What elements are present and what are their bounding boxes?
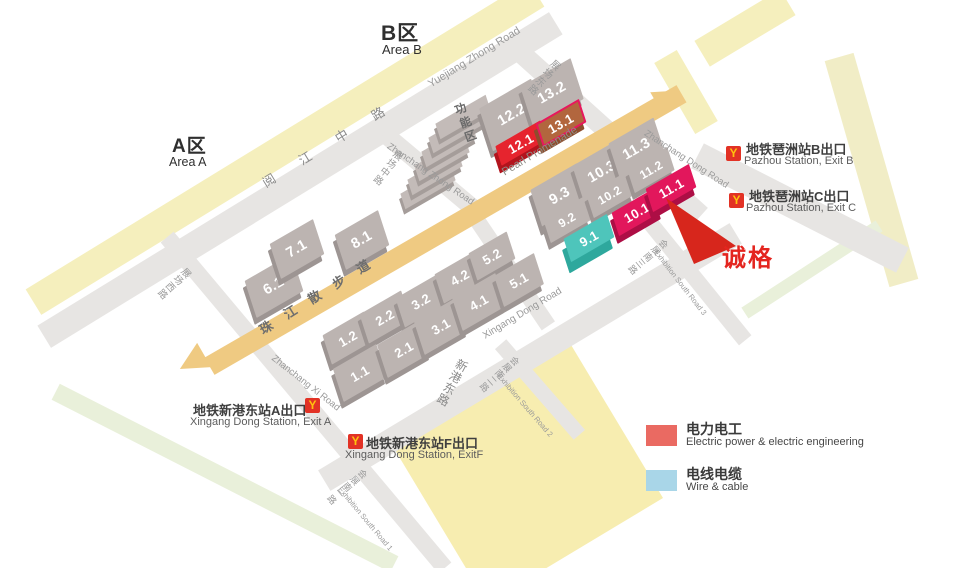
- legend-swatch-cable: [646, 470, 677, 491]
- hall-label: 1.1: [348, 362, 372, 385]
- hall-7-1: 7.1: [270, 219, 325, 279]
- hall-label: 5.1: [507, 269, 531, 292]
- hall-label: 8.1: [349, 228, 376, 253]
- hall-label: 9.1: [577, 227, 601, 250]
- hall-label: 12.2: [495, 101, 529, 130]
- hall-label: 2.2: [373, 306, 397, 329]
- hall-label: 4.2: [448, 266, 472, 289]
- metro-icon: Y: [348, 434, 363, 449]
- exhibition-map: 功能区 9.3 10.3 11.3 12.2 13.2 9.2 10.2 11.…: [0, 0, 961, 568]
- metro-exit-b-en: Pazhou Station, Exit B: [744, 155, 853, 167]
- hall-label: 10.2: [596, 183, 625, 208]
- area-a-subtitle: Area A: [169, 155, 207, 169]
- zone-yellow-topright-2: [694, 0, 795, 67]
- hall-label: 7.1: [284, 237, 311, 262]
- legend-power-en: Electric power & electric engineering: [686, 436, 864, 448]
- hall-label: 2.1: [392, 338, 416, 361]
- area-b-subtitle: Area B: [382, 42, 422, 57]
- legend-swatch-power: [646, 425, 677, 446]
- road-label-zhanchang-zhong-cn: 展场中路: [368, 146, 405, 188]
- hall-label: 1.2: [336, 327, 360, 350]
- promenade-arrowhead-west: [173, 343, 211, 381]
- legend-cable-en: Wire & cable: [686, 481, 748, 493]
- metro-icon: Y: [305, 398, 320, 413]
- hall-label: 3.2: [409, 290, 433, 313]
- area-a-title: A区: [172, 131, 207, 158]
- metro-exit-a-en: Xingang Dong Station, Exit A: [190, 416, 331, 428]
- hall-label: 10.1: [621, 199, 652, 226]
- hall-label: 5.2: [480, 245, 504, 268]
- metro-icon: Y: [726, 146, 741, 161]
- metro-exit-f-en: Xingang Dong Station, ExitF: [345, 449, 483, 461]
- metro-exit-c-en: Pazhou Station, Exit C: [746, 202, 856, 214]
- hall-label: 9.2: [556, 209, 579, 230]
- hall-label: 4.1: [467, 291, 491, 314]
- company-label: 诚格: [722, 238, 774, 273]
- hall-label: 3.1: [429, 315, 453, 338]
